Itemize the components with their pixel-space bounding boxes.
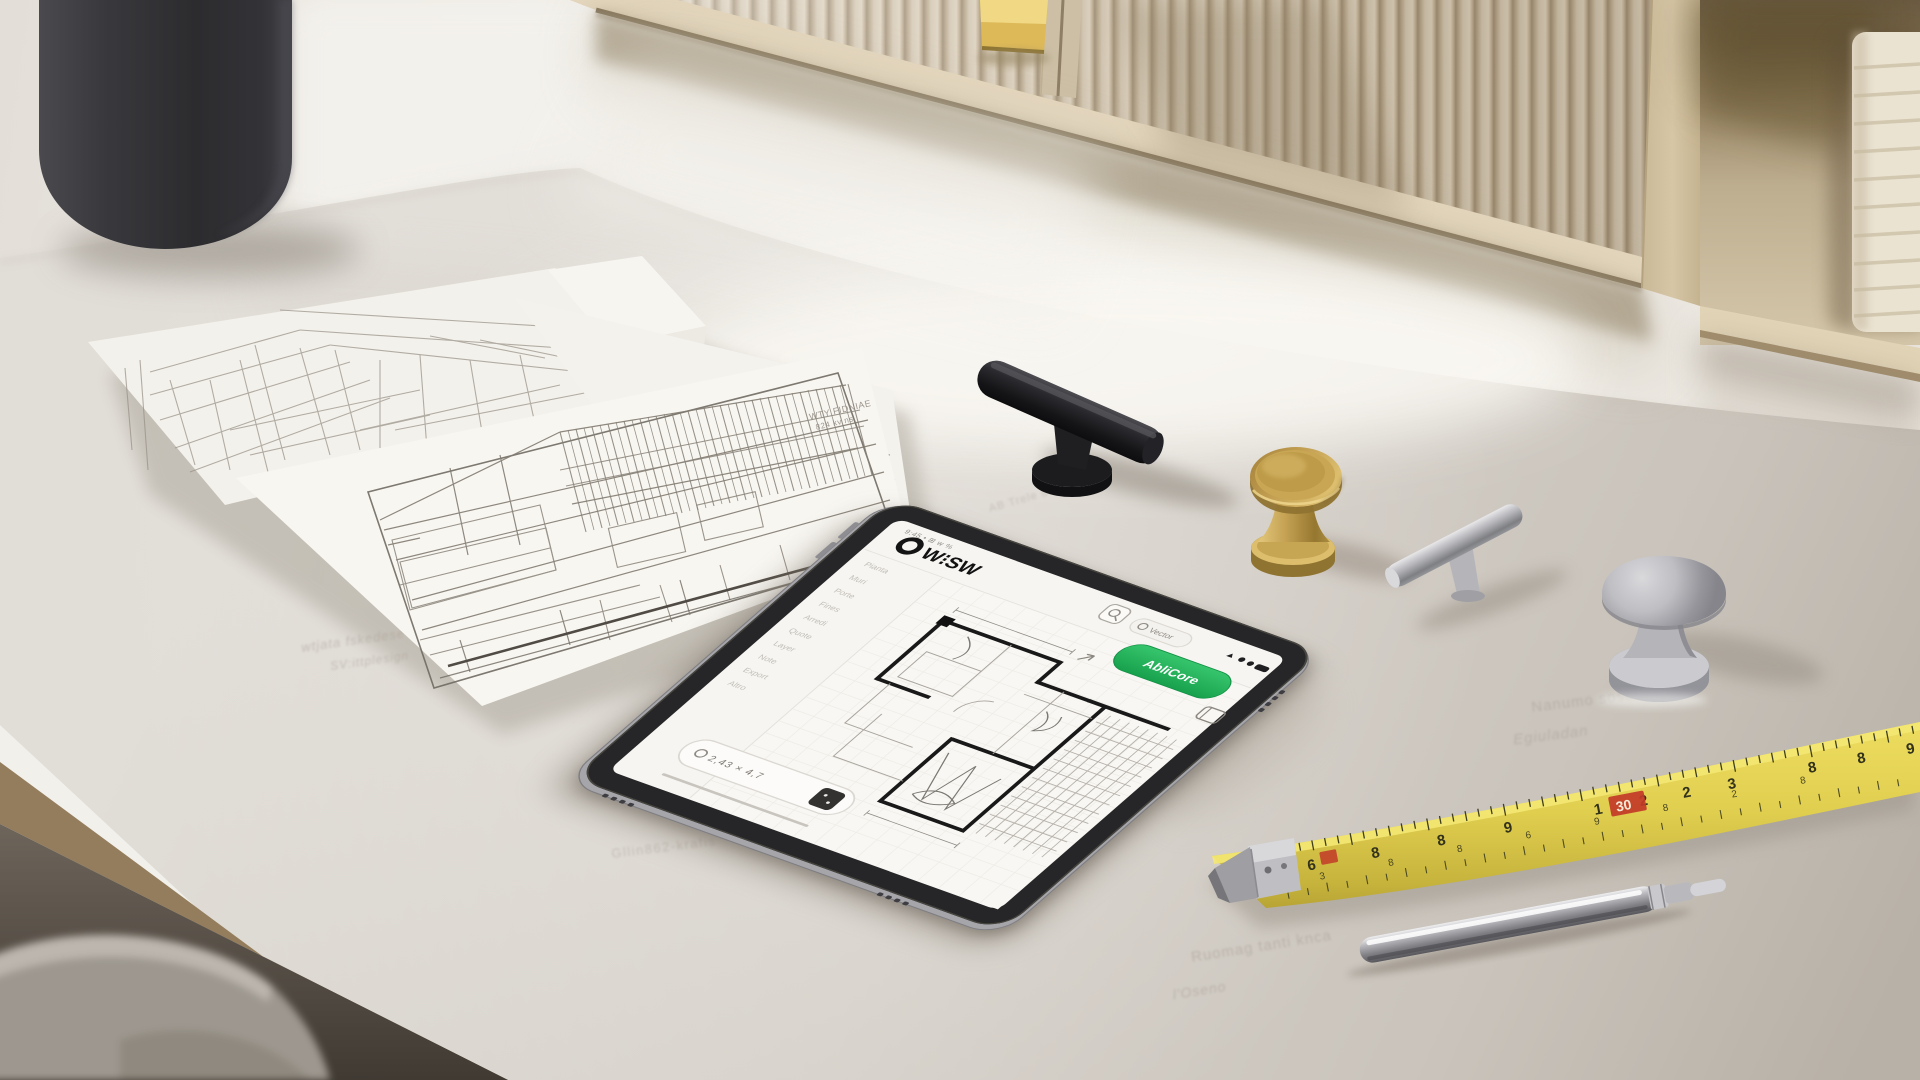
svg-text:30: 30 [1614,796,1633,815]
